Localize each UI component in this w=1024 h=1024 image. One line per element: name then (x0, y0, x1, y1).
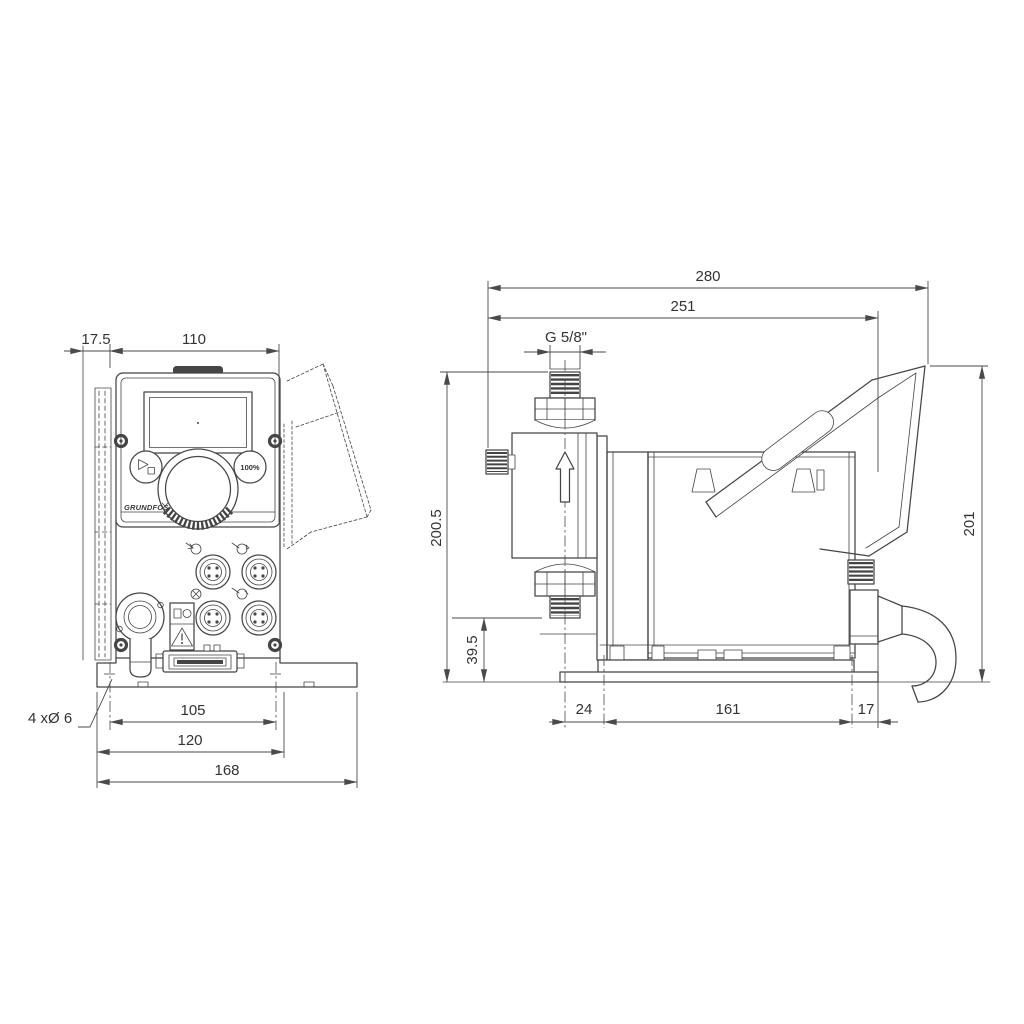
gland-cone (878, 596, 902, 642)
pump-dimensional-drawing: 100% GRUNDFOS (0, 0, 1024, 1024)
pump-body-front (116, 520, 281, 677)
dim-total-depth: 280 (695, 268, 720, 285)
cover-open-phantom (284, 364, 371, 549)
power-cable (902, 606, 956, 702)
dim-body-depth: 251 (670, 298, 695, 315)
cover-handle-recess (757, 406, 838, 475)
click-wheel[interactable] (158, 449, 238, 529)
head-body (512, 433, 597, 558)
head-bracket (597, 436, 607, 660)
dim-panel-width: 110 (182, 331, 206, 348)
dim-cover-height: 201 (961, 511, 978, 536)
base-plate-side (560, 645, 878, 682)
control-panel: 100% GRUNDFOS (116, 366, 281, 529)
dim-plate-length: 161 (715, 701, 740, 718)
vent-valve[interactable] (486, 450, 515, 474)
m12-connector (196, 601, 230, 635)
display (144, 392, 252, 453)
start-stop-button[interactable] (130, 451, 162, 483)
dim-thread: G 5/8" (545, 329, 587, 346)
dim-hole-pitch: 105 (180, 702, 205, 719)
dim-total-height: 200.5 (428, 509, 445, 547)
tilted-cover (706, 366, 925, 556)
dim-rear-offset: 17 (858, 701, 875, 718)
m12-connector (242, 555, 276, 589)
clip-tab (792, 469, 815, 492)
grundfos-logo: GRUNDFOS (124, 503, 169, 512)
dim-plate-width: 120 (177, 732, 202, 749)
dim-base-width: 168 (214, 762, 239, 779)
hundred-percent-button[interactable]: 100% (234, 451, 266, 483)
dim-wall-offset: 17.5 (81, 331, 110, 348)
dim-valve-height: 39.5 (464, 635, 481, 664)
m12-connector (196, 555, 230, 589)
m12-connector (242, 601, 276, 635)
hundred-percent-label: 100% (240, 463, 260, 472)
logo-text: GRUNDFOS (124, 503, 169, 512)
cable-stub (130, 639, 151, 677)
technical-drawing-page: 100% GRUNDFOS (0, 0, 1024, 1024)
clip-tab (692, 469, 715, 492)
wall-bracket (95, 388, 111, 660)
holes-note: 4 xØ 6 (28, 710, 72, 727)
warning-label (170, 603, 194, 650)
dim-head-offset: 24 (576, 701, 593, 718)
front-view: 100% GRUNDFOS (28, 331, 371, 788)
side-view: 280 251 G 5/8" 200.5 39.5 201 24 (428, 268, 990, 728)
